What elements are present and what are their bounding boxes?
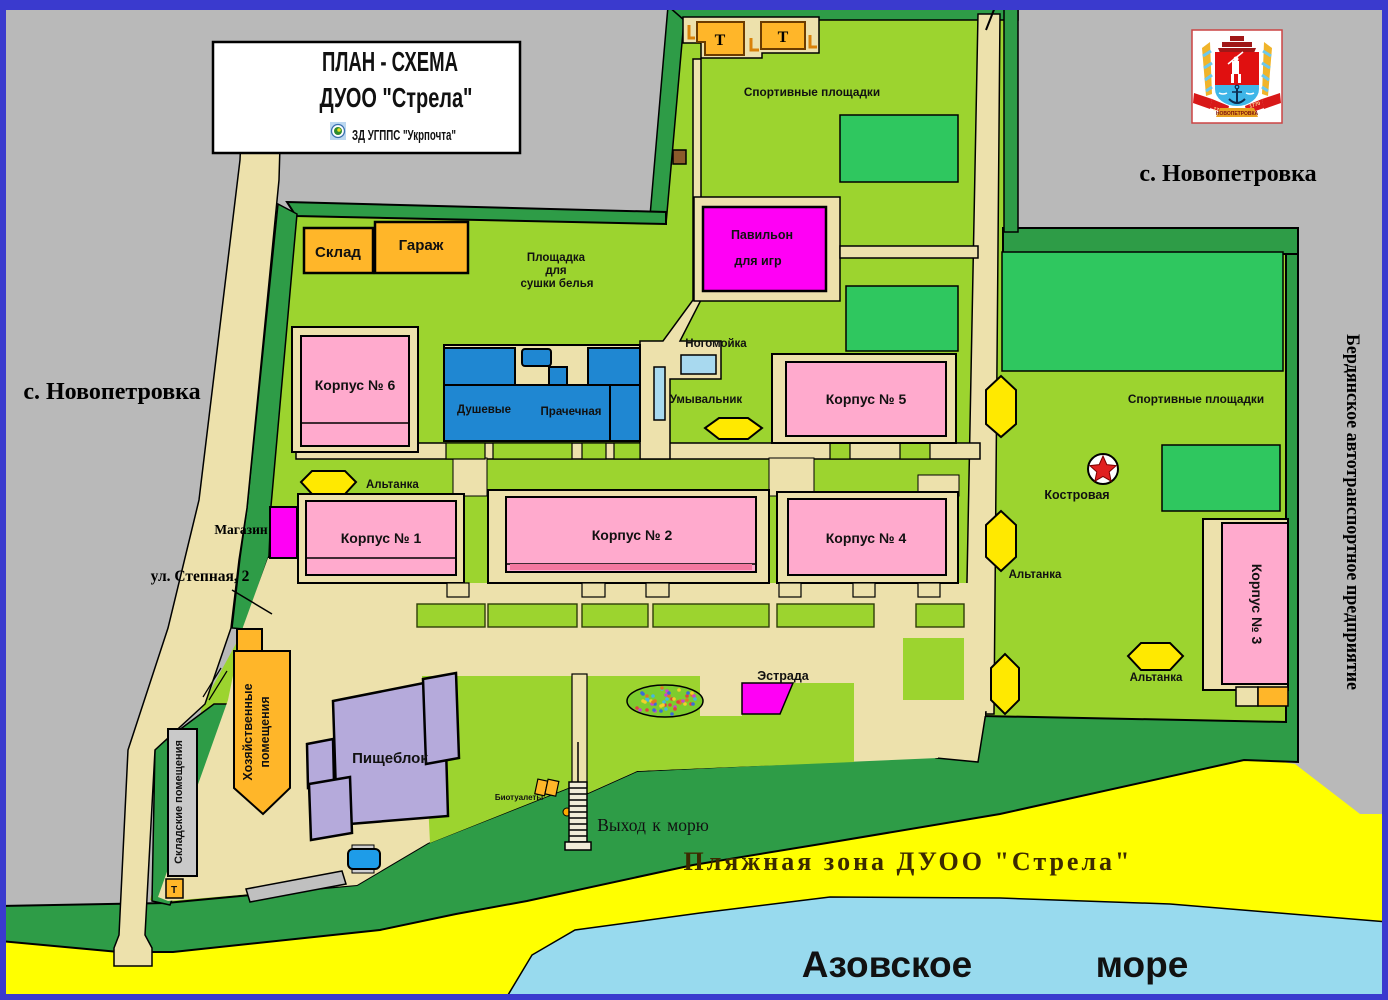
svg-text:Корпус № 6: Корпус № 6: [315, 377, 396, 393]
svg-text:Ногомойка: Ногомойка: [685, 338, 747, 350]
svg-text:ЗД УГППС "Укрпочта": ЗД УГППС "Укрпочта": [352, 128, 456, 144]
svg-text:Хозяйственные: Хозяйственные: [241, 683, 255, 780]
svg-text:Альтанка: Альтанка: [1130, 672, 1183, 684]
svg-text:помещения: помещения: [258, 696, 272, 767]
svg-text:море: море: [1096, 944, 1189, 985]
svg-text:Корпус № 5: Корпус № 5: [826, 391, 907, 407]
svg-text:Корпус № 1: Корпус № 1: [341, 530, 422, 546]
svg-text:НОВОПЕТРОВКА: НОВОПЕТРОВКА: [1216, 111, 1259, 117]
svg-text:Спортивные площадки: Спортивные площадки: [1128, 392, 1264, 406]
svg-text:Эстрада: Эстрада: [757, 669, 809, 683]
svg-text:Складские помещения: Складские помещения: [173, 740, 185, 864]
svg-text:Т: Т: [171, 885, 177, 896]
svg-text:Павильон: Павильон: [731, 228, 793, 242]
svg-text:с. Новопетровка: с. Новопетровка: [23, 379, 200, 405]
svg-text:Бердянское автотранспортное: Бердянское автотранспортное предприятие: [1342, 334, 1363, 690]
svg-text:Пляжная зона ДУОО "Стрела": Пляжная зона ДУОО "Стрела": [684, 847, 1133, 876]
svg-text:Душевые: Душевые: [457, 404, 511, 416]
svg-text:Альтанка: Альтанка: [366, 479, 419, 491]
svg-text:Альтанка: Альтанка: [1009, 569, 1062, 581]
svg-text:для игр: для игр: [734, 254, 782, 268]
svg-text:Площадка: Площадка: [527, 252, 586, 264]
svg-text:Пищеблок: Пищеблок: [352, 750, 428, 767]
svg-text:Умывальник: Умывальник: [670, 394, 743, 406]
svg-text:Костровая: Костровая: [1044, 488, 1109, 502]
svg-text:Азовское: Азовское: [802, 944, 972, 985]
svg-text:ДУОО "Стрела": ДУОО "Стрела": [320, 82, 473, 113]
svg-text:Т: Т: [778, 29, 789, 46]
svg-text:Спортивные площадки: Спортивные площадки: [744, 85, 880, 99]
svg-text:Прачечная: Прачечная: [541, 406, 602, 418]
svg-text:Склад: Склад: [315, 244, 361, 261]
svg-text:Корпус № 3: Корпус № 3: [1249, 564, 1265, 645]
svg-text:с. Новопетровка: с. Новопетровка: [1139, 161, 1316, 187]
svg-text:ПЛАН - СХЕМА: ПЛАН - СХЕМА: [322, 46, 458, 77]
svg-text:Магазин: Магазин: [214, 522, 268, 537]
svg-text:для: для: [545, 265, 566, 277]
svg-text:Корпус № 2: Корпус № 2: [592, 527, 673, 543]
svg-text:Гараж: Гараж: [399, 237, 444, 254]
svg-text:Выход к морю: Выход к морю: [597, 815, 709, 835]
svg-text:ул. Степная, 2: ул. Степная, 2: [151, 568, 250, 585]
svg-text:сушки белья: сушки белья: [521, 278, 594, 290]
svg-text:Т: Т: [715, 32, 726, 49]
svg-text:Биотуалеты: Биотуалеты: [495, 793, 544, 802]
svg-text:Корпус № 4: Корпус № 4: [826, 530, 907, 546]
